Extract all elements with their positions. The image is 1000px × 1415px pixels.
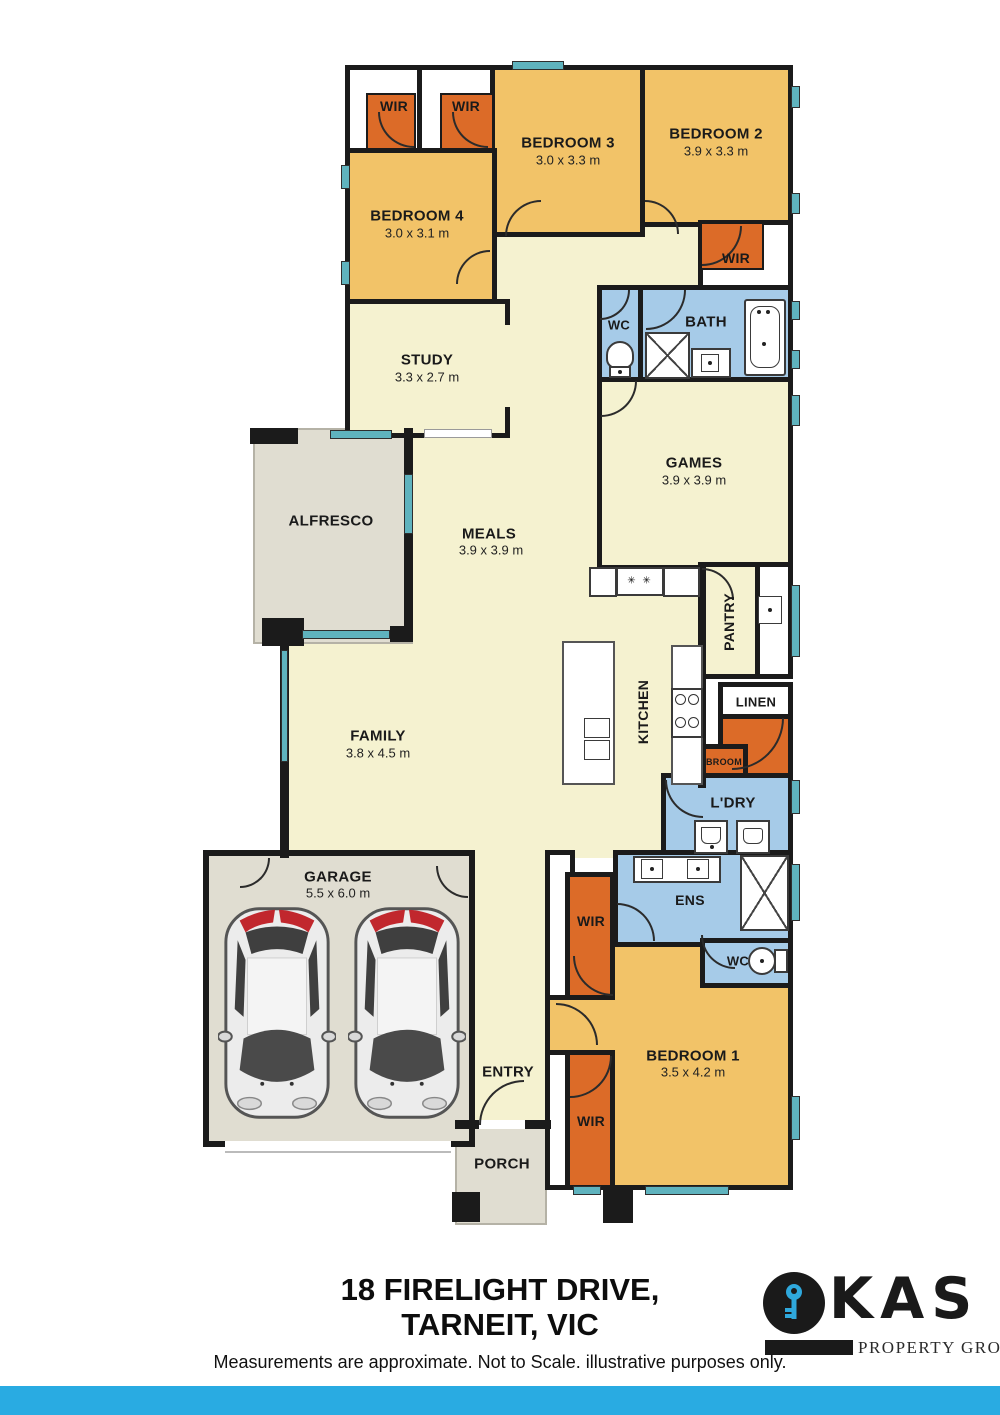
okas-logo: KAS PROPERTY GROUP xyxy=(763,1270,995,1358)
label-meals: MEALS xyxy=(462,526,516,543)
floor-corridor xyxy=(502,295,602,443)
kitchen-island xyxy=(562,641,615,785)
gas-burners-icon: ✳ ✳ xyxy=(627,576,653,587)
label-alfresco: ALFRESCO xyxy=(289,513,374,530)
label-bedroom1: BEDROOM 1 xyxy=(646,1048,740,1065)
dims-bedroom1: 3.5 x 4.2 m xyxy=(661,1065,725,1080)
alfresco-deck xyxy=(253,428,413,644)
dims-family: 3.8 x 4.5 m xyxy=(346,746,410,761)
label-bedroom2: BEDROOM 2 xyxy=(669,126,763,143)
label-family: FAMILY xyxy=(350,728,405,745)
toilet-dot xyxy=(618,370,622,374)
post-alfresco-bottom-left xyxy=(262,618,304,646)
floorplan-page: ✳ ✳ xyxy=(0,0,1000,1415)
label-laundry: L'DRY xyxy=(710,795,755,812)
car-icon xyxy=(348,898,466,1126)
island-sink-2 xyxy=(584,740,610,760)
toilet-ens-tank xyxy=(774,949,788,973)
key-icon xyxy=(781,1283,807,1323)
label-wc-main: WC xyxy=(608,318,630,333)
window xyxy=(791,864,800,921)
dims-garage: 5.5 x 6.0 m xyxy=(306,886,370,901)
basin-dot xyxy=(768,608,772,612)
window xyxy=(791,395,800,426)
window xyxy=(512,61,564,70)
label-ens: ENS xyxy=(675,892,705,908)
window xyxy=(573,1186,601,1195)
window xyxy=(791,780,800,814)
burner xyxy=(688,694,699,705)
burner xyxy=(675,694,686,705)
opening-garage-door xyxy=(225,1141,451,1150)
label-bedroom3: BEDROOM 3 xyxy=(521,135,615,152)
window xyxy=(791,1096,800,1140)
window-alfresco-top xyxy=(330,430,392,439)
label-games: GAMES xyxy=(666,455,723,472)
window xyxy=(791,350,800,369)
label-porch: PORCH xyxy=(474,1156,530,1173)
tap-dot xyxy=(766,310,770,314)
window xyxy=(791,585,800,657)
drain-dot xyxy=(762,342,766,346)
appliance-nook-left xyxy=(589,567,617,597)
bathtub-inner xyxy=(750,306,780,368)
opening-study-right xyxy=(501,325,512,407)
dims-bedroom3: 3.0 x 3.3 m xyxy=(536,153,600,168)
sink-dot xyxy=(650,867,654,871)
label-garage: GARAGE xyxy=(304,869,372,886)
dims-games: 3.9 x 3.9 m xyxy=(662,473,726,488)
okas-logo-letters: KAS xyxy=(829,1266,979,1332)
sink-dot xyxy=(696,867,700,871)
post-porch-right xyxy=(603,1190,633,1223)
window-alfresco-door xyxy=(404,474,413,534)
window xyxy=(645,1186,729,1195)
wall-meals-alfresco xyxy=(404,428,413,642)
dims-meals: 3.9 x 3.9 m xyxy=(459,543,523,558)
label-kitchen: KITCHEN xyxy=(635,680,651,744)
label-linen: LINEN xyxy=(736,695,777,710)
dims-bedroom4: 3.0 x 3.1 m xyxy=(385,226,449,241)
window xyxy=(341,165,350,189)
label-pantry: PANTRY xyxy=(721,593,737,651)
window xyxy=(791,86,800,108)
post-porch-left xyxy=(452,1192,480,1222)
toilet-main xyxy=(606,341,634,369)
dims-study: 3.3 x 2.7 m xyxy=(395,370,459,385)
trough-dot xyxy=(710,845,714,849)
island-sink-1 xyxy=(584,718,610,738)
okas-logo-o-circle xyxy=(763,1272,825,1334)
label-entry: ENTRY xyxy=(482,1064,534,1081)
window xyxy=(791,301,800,320)
window-family xyxy=(281,650,288,762)
label-bedroom4: BEDROOM 4 xyxy=(370,208,464,225)
post-alfresco-bottom-right xyxy=(390,626,413,642)
car-icon xyxy=(218,898,336,1126)
label-wir-bed1: WIR xyxy=(577,1113,605,1129)
burner xyxy=(688,717,699,728)
footer-blue-bar xyxy=(0,1386,1000,1415)
window-alfresco-bottom xyxy=(302,630,390,639)
label-wir-bed2: WIR xyxy=(722,250,750,266)
appliance-nook-right xyxy=(663,567,700,597)
garage-door-line xyxy=(225,1151,451,1153)
shower-bath xyxy=(645,332,690,379)
label-wir-ens: WIR xyxy=(577,913,605,929)
label-study: STUDY xyxy=(401,352,453,369)
shower-ens xyxy=(740,855,789,931)
tap-dot xyxy=(757,310,761,314)
label-wc-ens: WC xyxy=(727,954,749,969)
washer-inner xyxy=(743,828,763,844)
dims-bedroom2: 3.9 x 3.3 m xyxy=(684,144,748,159)
window xyxy=(341,261,350,285)
label-bath: BATH xyxy=(685,314,727,331)
post-alfresco-top-left xyxy=(250,428,298,444)
disclaimer-text: Measurements are approximate. Not to Sca… xyxy=(0,1352,1000,1373)
toilet-dot xyxy=(760,959,764,963)
sink-dot xyxy=(708,361,712,365)
window-study xyxy=(424,429,492,438)
label-broom: BROOM xyxy=(706,757,742,767)
room-study xyxy=(345,299,510,438)
label-wir-top-left: WIR xyxy=(380,98,408,114)
trough-inner xyxy=(701,827,721,844)
label-wir-top-mid: WIR xyxy=(452,98,480,114)
burner xyxy=(675,717,686,728)
window xyxy=(791,193,800,214)
